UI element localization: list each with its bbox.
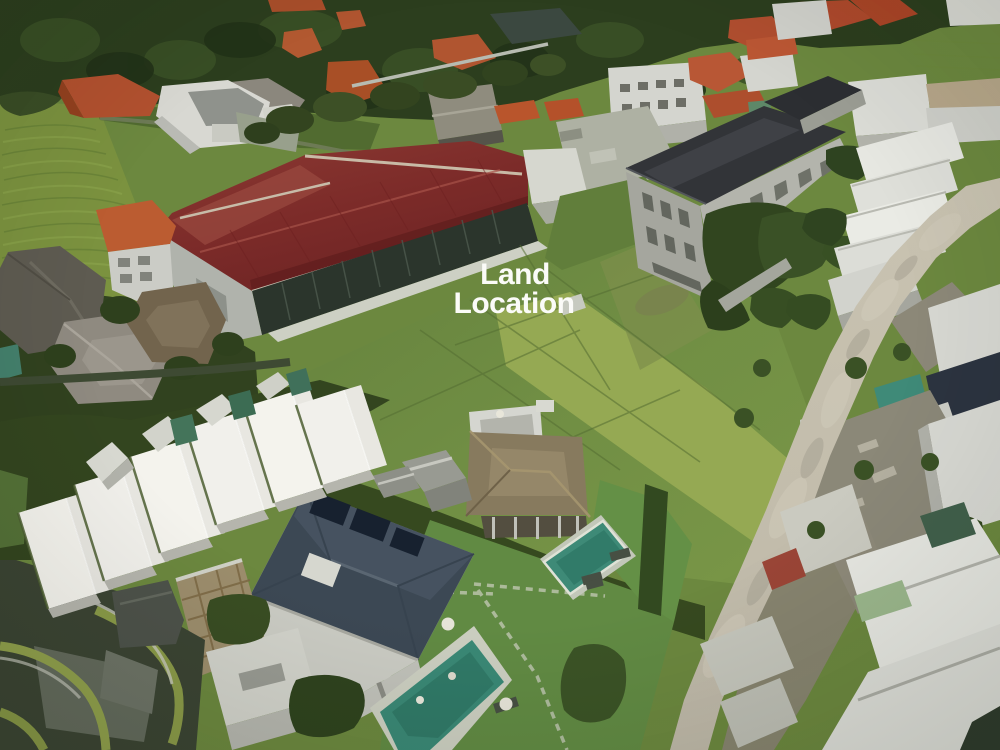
svg-text:Location: Location [454,287,575,320]
